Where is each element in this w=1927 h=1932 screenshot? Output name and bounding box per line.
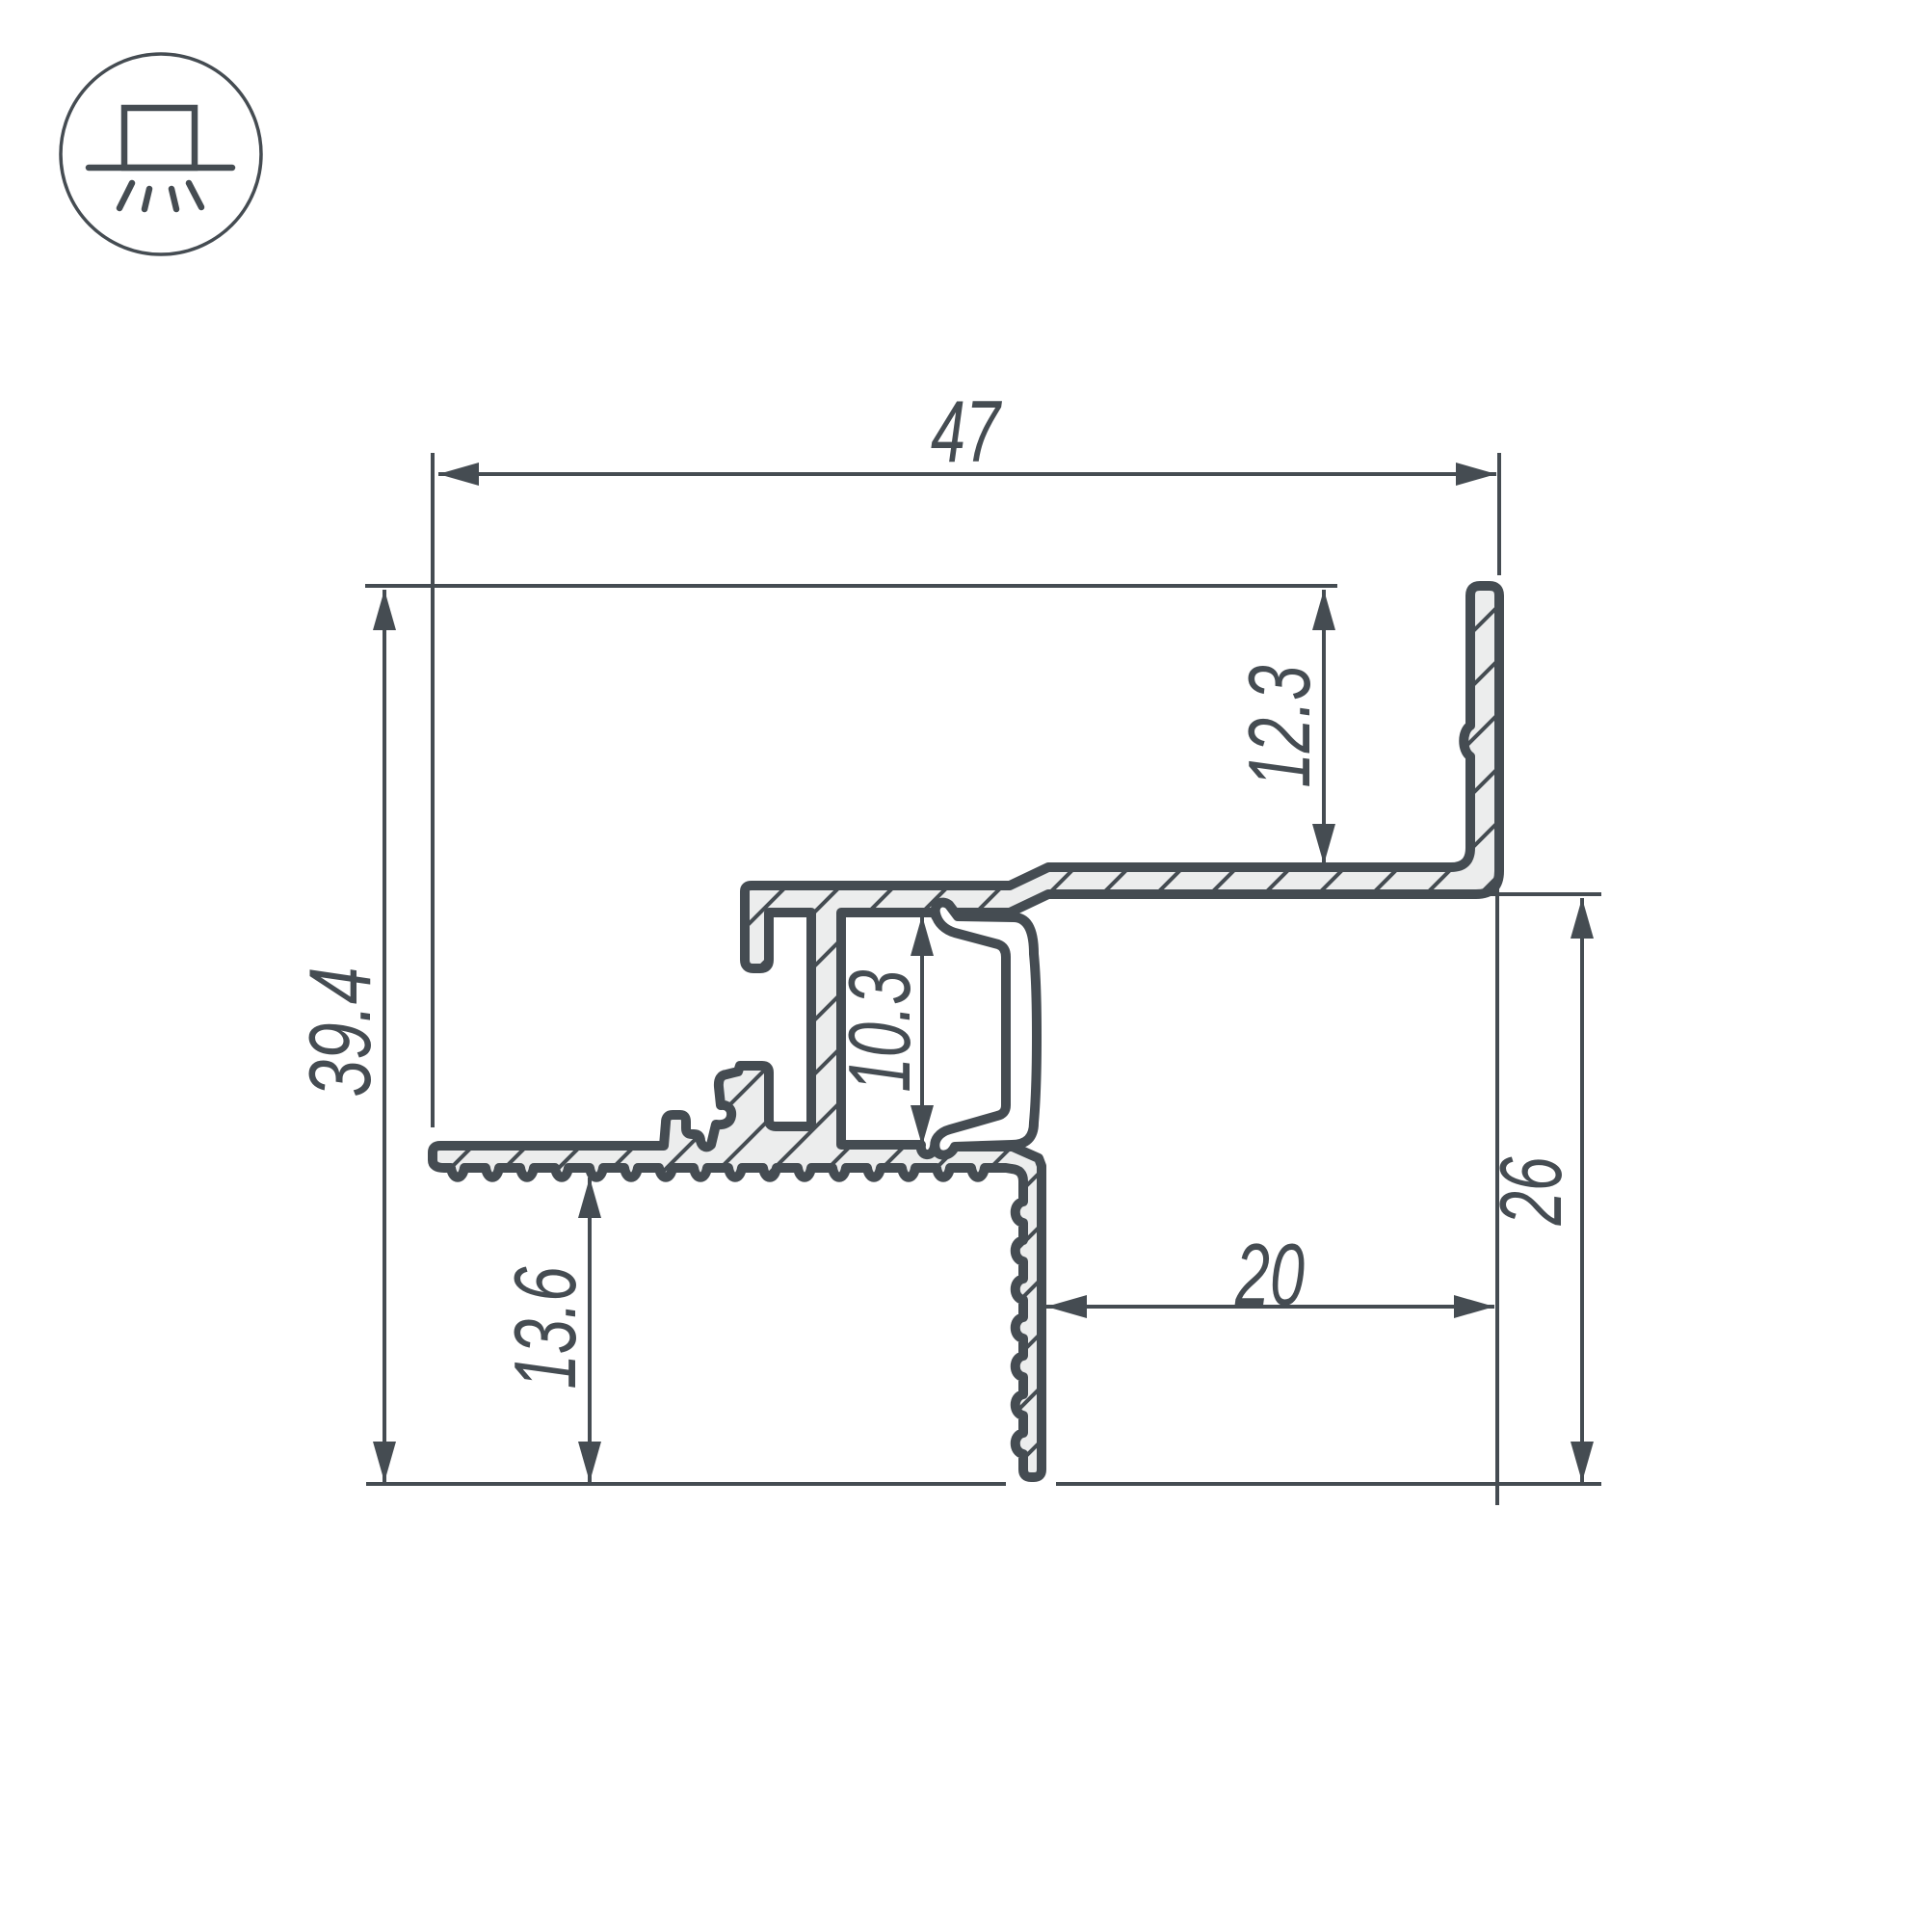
svg-text:26: 26 — [1483, 1156, 1580, 1226]
svg-text:12.3: 12.3 — [1231, 666, 1329, 788]
svg-text:39.4: 39.4 — [292, 967, 389, 1098]
svg-text:13.6: 13.6 — [497, 1266, 594, 1389]
svg-text:10.3: 10.3 — [832, 970, 929, 1093]
svg-text:47: 47 — [931, 384, 1002, 481]
svg-text:20: 20 — [1234, 1227, 1305, 1324]
